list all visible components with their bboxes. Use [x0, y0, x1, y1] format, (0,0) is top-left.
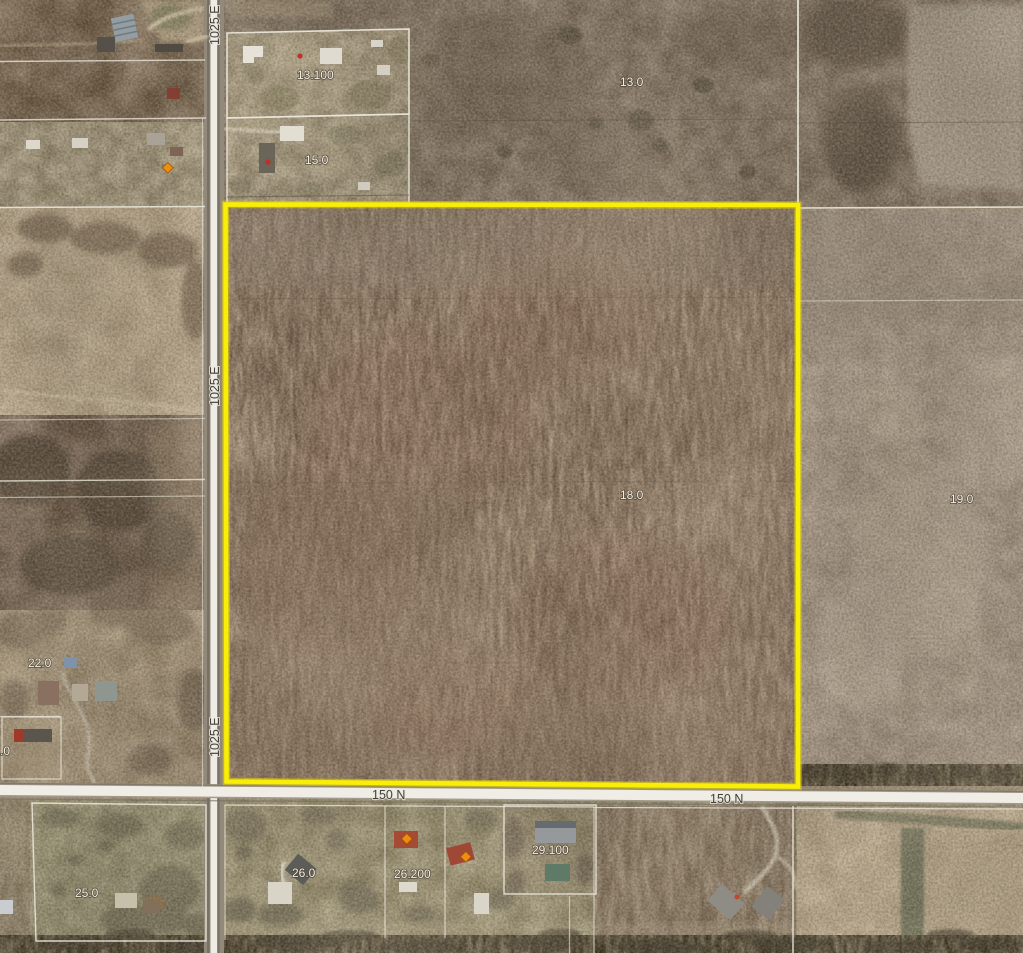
svg-text:29.100: 29.100	[532, 843, 569, 857]
svg-text:150 N: 150 N	[372, 788, 405, 802]
svg-text:1025 E: 1025 E	[208, 5, 222, 45]
svg-text:15.0: 15.0	[305, 153, 329, 167]
svg-text:26.0: 26.0	[292, 866, 316, 880]
svg-text:25.0: 25.0	[75, 886, 99, 900]
svg-text:22.0: 22.0	[28, 656, 52, 670]
svg-text:13.100: 13.100	[297, 68, 334, 82]
svg-text:13.0: 13.0	[620, 75, 644, 89]
svg-text:150 N: 150 N	[710, 792, 743, 806]
svg-text:1025 E: 1025 E	[208, 717, 222, 757]
svg-text:26.200: 26.200	[394, 867, 431, 881]
svg-text:1025 E: 1025 E	[208, 366, 222, 406]
svg-text:18.0: 18.0	[620, 488, 644, 502]
svg-text:.0: .0	[0, 744, 10, 758]
svg-text:19.0: 19.0	[950, 492, 974, 506]
